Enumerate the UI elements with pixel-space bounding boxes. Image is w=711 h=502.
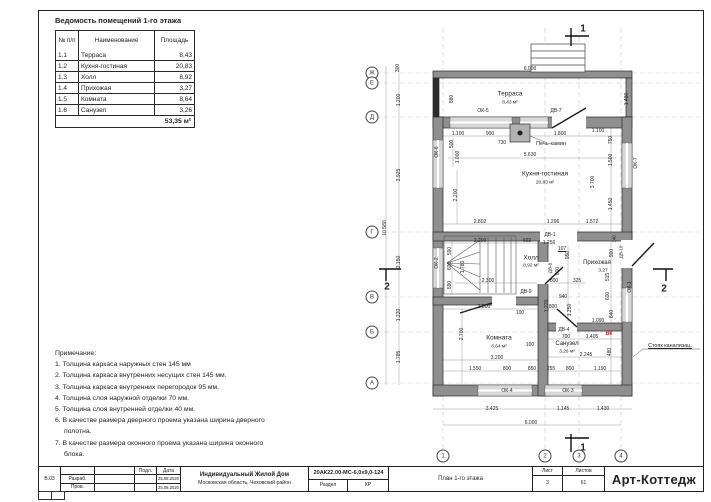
revision-cell: В.03 bbox=[39, 467, 61, 491]
axis-bubble: Г bbox=[366, 226, 379, 239]
dim-label: 800 bbox=[555, 267, 561, 275]
empty-cell bbox=[135, 475, 156, 483]
dim-label: 515 bbox=[605, 273, 611, 281]
project-cell: Индивидуальный Жилой Дом Московская обла… bbox=[181, 467, 309, 491]
room-label: Санузел bbox=[555, 341, 578, 347]
entry-steps bbox=[531, 44, 585, 72]
dim-label: 1.145 bbox=[557, 406, 570, 412]
dim-label: 840 bbox=[609, 310, 615, 318]
sewer-riser-label: Стояк канализац. bbox=[648, 343, 692, 349]
sheets-total-col: Листов 61 bbox=[563, 467, 605, 491]
opening-mark: ДВ-7 bbox=[550, 108, 561, 114]
dim-label: 300 bbox=[395, 64, 401, 72]
empty-cell bbox=[61, 467, 94, 475]
dim-label: 800 bbox=[550, 278, 558, 284]
project-location: Московская область, Чеховский район bbox=[198, 480, 291, 487]
margin-cell bbox=[51, 491, 65, 500]
axis-bubble: Д bbox=[366, 111, 379, 124]
axis-bubble: Б bbox=[366, 326, 379, 339]
dim-label: 100 bbox=[516, 310, 524, 316]
sheets-total: 61 bbox=[563, 476, 604, 491]
dim-label: 1.190 bbox=[594, 366, 607, 372]
dim-label: 1.100 bbox=[592, 128, 605, 134]
sheet-title: План 1-го этажа bbox=[389, 467, 533, 491]
axis-bubble: Е bbox=[366, 77, 379, 90]
dim-label: 6.000 bbox=[524, 66, 537, 72]
dim-label: 140 bbox=[612, 235, 617, 242]
razdel-label: Раздел bbox=[309, 480, 348, 492]
podl-label: Подл. bbox=[135, 467, 156, 475]
bottom-margin-cells bbox=[38, 491, 64, 500]
opening-mark: ОК-1 bbox=[627, 281, 633, 292]
dim-label: 1.800 bbox=[554, 131, 567, 137]
room-label: Терраса bbox=[498, 91, 523, 98]
dim-label: 6.000 bbox=[525, 420, 538, 426]
dim-label: 3.925 bbox=[396, 169, 402, 182]
dim-label: 1.500 bbox=[608, 154, 614, 167]
dim-label: 2.200 bbox=[453, 189, 459, 202]
drawing-sheet: Ведомость помещений 1-го этажа № п/п Наи… bbox=[0, 0, 711, 502]
empty-cell bbox=[135, 484, 156, 491]
dim-label: 1.550 bbox=[469, 366, 482, 372]
prov-label: Пров. bbox=[61, 484, 94, 491]
dim-label: 730 bbox=[498, 140, 506, 146]
sewer-leader-line bbox=[633, 349, 700, 357]
axis-bubble: А bbox=[366, 377, 379, 390]
dim-label: 2.300 bbox=[482, 278, 495, 284]
room-area: 8,43 м² bbox=[502, 101, 518, 106]
dim-label: 1.100 bbox=[452, 131, 465, 137]
dim-label: 602 bbox=[523, 238, 531, 244]
dim-label: 2.802 bbox=[474, 219, 487, 225]
room-area: 8,92 м² bbox=[523, 264, 539, 269]
dim-label: 1.480 bbox=[624, 93, 630, 106]
dim-label: 100 bbox=[526, 342, 534, 348]
dim-label: 800 bbox=[503, 366, 511, 372]
dim-label: 850 bbox=[528, 366, 536, 372]
opening-mark: ДВ-8 bbox=[548, 263, 553, 273]
razdel-row: Раздел КР bbox=[309, 480, 388, 492]
dim-label: 750 bbox=[608, 136, 614, 144]
empty-cell bbox=[95, 475, 134, 483]
dim-label: 1.000 bbox=[455, 151, 461, 164]
dim-label: 1.296 bbox=[547, 219, 560, 225]
razdel-value: КР bbox=[348, 480, 388, 492]
dim-label: 3.700 bbox=[590, 176, 596, 189]
room-label: Кухня-гостиная bbox=[522, 171, 568, 178]
section-number: 2 bbox=[661, 284, 667, 295]
dim-label: 255 bbox=[547, 366, 555, 372]
razrab-label: Разраб. bbox=[61, 475, 94, 483]
vk-mark: ВК bbox=[606, 331, 613, 337]
opening-mark: ДВ-4 bbox=[558, 327, 569, 333]
sheet-number: 3 bbox=[533, 476, 562, 491]
section-number: 1 bbox=[580, 24, 586, 35]
opening-mark: ОК-4 bbox=[501, 388, 512, 394]
dim-label: 1.250 bbox=[567, 304, 573, 317]
stove-label: Печь-камин bbox=[536, 141, 566, 147]
dim-label: 1.785 bbox=[396, 351, 402, 364]
dim-label: 3.425 bbox=[486, 406, 499, 412]
room-label: Комната bbox=[486, 335, 511, 342]
stairs bbox=[444, 236, 516, 294]
date-label: Дата bbox=[157, 467, 180, 475]
doc-code: 20АК22.00-МС-6,0х9,0-124 bbox=[309, 467, 388, 480]
axis-bubble: В bbox=[366, 291, 379, 304]
axis-bubble: 2 bbox=[539, 450, 552, 463]
dim-label: 600 bbox=[605, 292, 611, 300]
dim-label: 2.700 bbox=[459, 328, 465, 341]
sheets-label: Листов bbox=[563, 467, 604, 476]
date-col: Дата 25.08.2020 25.08.2020 bbox=[157, 467, 181, 491]
empty-cell bbox=[95, 484, 134, 491]
opening-mark: ДВ-10 bbox=[619, 246, 624, 259]
dim-label: 800 bbox=[549, 304, 557, 310]
company-name: Арт-Коттедж bbox=[605, 467, 703, 491]
dim-label: 2.300 bbox=[478, 304, 491, 310]
room-label: Холл bbox=[523, 255, 538, 262]
axis-bubble: 1 bbox=[437, 450, 450, 463]
room-area: 20,83 м² bbox=[536, 181, 554, 186]
dim-label: 2.150 bbox=[396, 256, 402, 269]
dim-label: 10.580 bbox=[382, 220, 388, 235]
date-value: 25.08.2020 bbox=[157, 484, 180, 491]
dim-label: 900 bbox=[609, 249, 615, 257]
sheet-label: Лист bbox=[533, 467, 562, 476]
dim-label: 590 bbox=[447, 247, 453, 255]
names-col bbox=[95, 467, 135, 491]
dim-label: 880 bbox=[449, 95, 455, 103]
dim-label: 1.220 bbox=[396, 309, 402, 322]
dim-label: 700 bbox=[562, 334, 570, 340]
doc-code-col: 20АК22.00-МС-6,0х9,0-124 Раздел КР bbox=[309, 467, 389, 491]
opening-mark: ОК-6 bbox=[434, 146, 440, 157]
project-name: Индивидуальный Жилой Дом bbox=[200, 472, 289, 480]
margin-cell bbox=[38, 491, 52, 500]
room-area: 3,26 м² bbox=[559, 350, 575, 355]
date-value: 25.08.2020 bbox=[157, 475, 180, 483]
floor-plan-drawing bbox=[0, 0, 711, 502]
room-area: 8,64 м² bbox=[491, 345, 507, 350]
dim-label: 950 bbox=[565, 251, 571, 259]
dim-label: 3.200 bbox=[491, 355, 504, 361]
dim-label: 1.780 bbox=[460, 261, 466, 274]
dim-label: 1.405 bbox=[586, 334, 599, 340]
dim-label: 600 bbox=[447, 262, 453, 270]
title-block: В.03 Разраб. Пров. Подл. Дата 25.08.2020… bbox=[38, 466, 704, 492]
dim-label: 1.430 bbox=[597, 406, 610, 412]
opening-mark: ДВ-9 bbox=[520, 289, 531, 295]
axis-bubble: 3 bbox=[573, 450, 586, 463]
section-number: 2 bbox=[384, 282, 390, 293]
dim-label: 1.200 bbox=[396, 94, 402, 107]
dim-label: 900 bbox=[486, 131, 494, 137]
dim-label: 325 bbox=[573, 278, 581, 284]
opening-mark: ДВ-1 bbox=[544, 232, 555, 238]
dim-label: 1.572 bbox=[586, 219, 599, 225]
dim-label: 480 bbox=[607, 348, 613, 356]
dim-label: 1.450 bbox=[608, 198, 614, 211]
dim-label: 590 bbox=[447, 281, 453, 289]
dim-label: 1.090 bbox=[592, 318, 605, 324]
dim-label: 1.256 bbox=[543, 240, 556, 246]
dim-label: 2.200 bbox=[474, 238, 487, 244]
room-label: Прихожая bbox=[583, 260, 611, 266]
opening-mark: ОК-3 bbox=[562, 388, 573, 394]
dim-label: 1.220 bbox=[544, 300, 550, 313]
signature-labels-col: Разраб. Пров. bbox=[61, 467, 95, 491]
sheet-num-col: Лист 3 bbox=[533, 467, 563, 491]
dim-label: 5.630 bbox=[524, 152, 537, 158]
opening-mark: ОК-7 bbox=[633, 157, 639, 168]
axis-bubble: 4 bbox=[615, 450, 628, 463]
dim-label: 940 bbox=[559, 294, 567, 300]
opening-mark: ОК-2 bbox=[434, 257, 440, 268]
dim-label: 2.245 bbox=[580, 352, 593, 358]
signature-col: Подл. bbox=[135, 467, 157, 491]
opening-mark: ОК-5 bbox=[477, 108, 488, 114]
empty-cell bbox=[95, 467, 134, 475]
dim-label: 800 bbox=[566, 366, 574, 372]
dim-label: 500 bbox=[449, 140, 455, 148]
